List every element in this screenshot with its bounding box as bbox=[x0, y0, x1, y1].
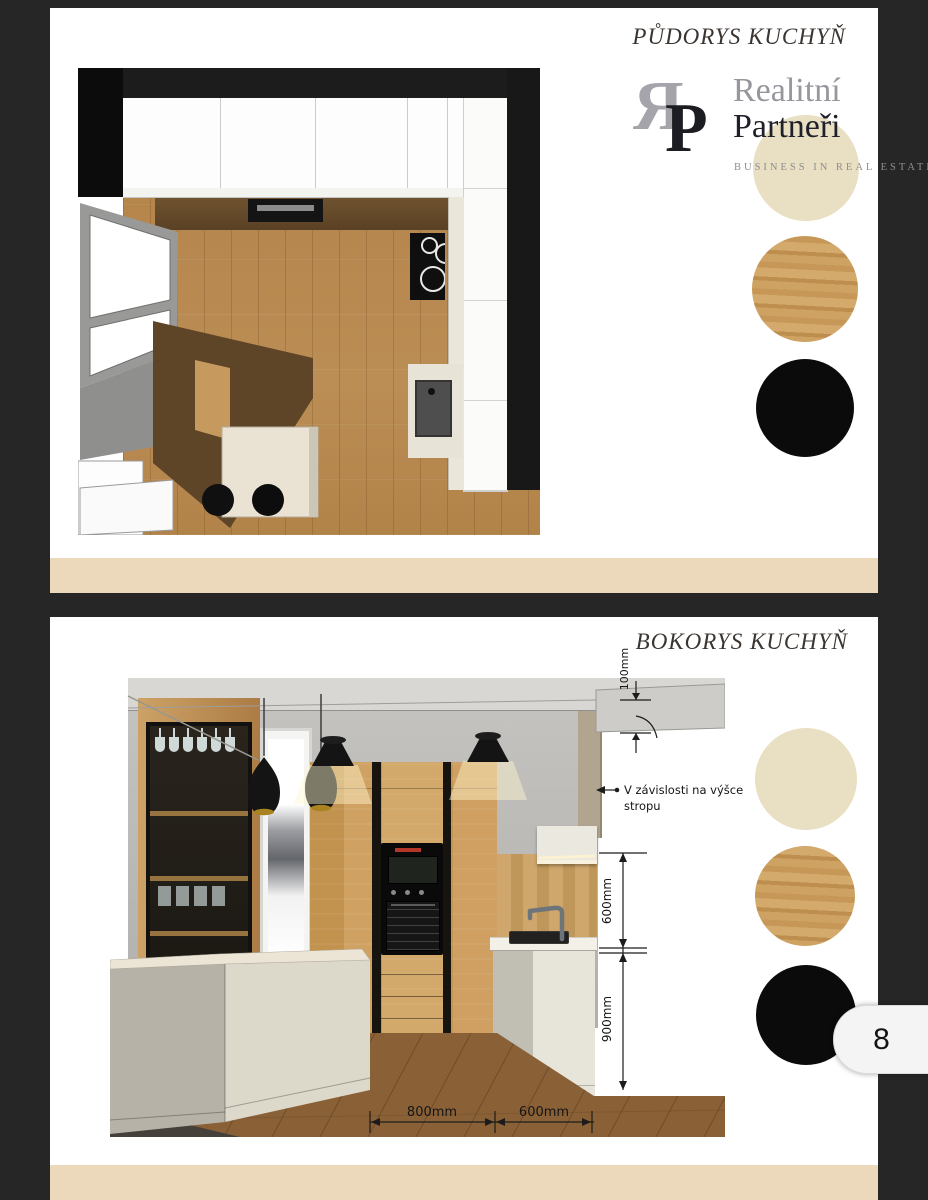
page-pudorys: PŮDORYS KUCHYŇ bbox=[50, 8, 878, 593]
spotlight-cone bbox=[294, 736, 372, 804]
page-number: 8 bbox=[873, 1023, 890, 1057]
page1-footer-strip bbox=[50, 558, 878, 593]
page2-title: BOKORYS KUCHYŇ bbox=[636, 629, 848, 655]
logo-word-partneri: Partneři bbox=[733, 110, 841, 144]
swatch-oak-wood bbox=[755, 846, 855, 946]
ceiling-edge-line bbox=[128, 700, 596, 708]
plan-left-details bbox=[78, 68, 540, 535]
page-bokorys: BOKORYS KUCHYŇ bbox=[50, 617, 878, 1200]
swatch-oak-wood bbox=[752, 236, 858, 342]
page1-title: PŮDORYS KUCHYŇ bbox=[632, 24, 846, 50]
faucet bbox=[530, 908, 562, 939]
pendant-light bbox=[248, 757, 280, 815]
swatch-cream bbox=[755, 728, 857, 830]
logo-tagline: BUSINESS IN REAL ESTATE bbox=[734, 162, 928, 173]
logo-monogram-p: P bbox=[665, 94, 708, 164]
swatch-black bbox=[756, 359, 854, 457]
document-viewer: PŮDORYS KUCHYŇ bbox=[0, 0, 928, 1200]
wall-corner-line bbox=[128, 696, 258, 760]
bar-stool bbox=[252, 484, 284, 516]
soffit-band bbox=[596, 684, 725, 732]
marble-island-edge bbox=[309, 427, 318, 517]
spotlight-cone bbox=[449, 732, 527, 800]
elevation-overlay bbox=[110, 672, 725, 1137]
kitchen-floorplan-render bbox=[78, 68, 540, 535]
realitni-partneri-logo: Я P Realitní Partneři BUSINESS IN REAL E… bbox=[635, 70, 880, 188]
logo-word-realitni: Realitní bbox=[733, 74, 841, 108]
under-cabinet-light bbox=[539, 856, 595, 858]
base-cabinet-front-2 bbox=[80, 480, 173, 535]
page2-footer-strip bbox=[50, 1165, 878, 1200]
kitchen-elevation-render bbox=[110, 672, 725, 1137]
page-number-badge[interactable]: 8 bbox=[833, 1005, 928, 1074]
bar-stool bbox=[202, 484, 234, 516]
